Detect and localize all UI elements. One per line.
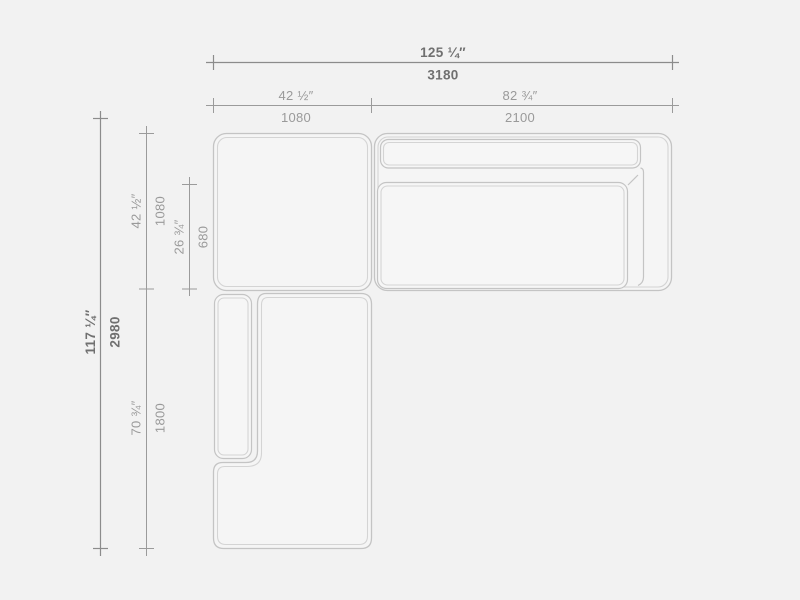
sofa-plan-drawing: 125 ¼″ 3180 42 ½″ 1080 82 ¾″ 2100 117 ¼″… xyxy=(0,0,800,600)
dim-chaise-length-mm: 1800 xyxy=(153,403,168,433)
dim-top-module-depth-inches: 42 ½″ xyxy=(129,193,144,228)
drawing-background xyxy=(0,0,800,600)
dim-seat-depth-mm: 680 xyxy=(196,226,211,249)
chaise-arm-cushion xyxy=(215,295,252,459)
sofa-backrest-cushion xyxy=(381,140,641,169)
dim-left-module-width-mm: 1080 xyxy=(281,110,311,125)
dim-overall-width-mm: 3180 xyxy=(427,68,458,83)
corner-module-outline xyxy=(214,134,372,291)
dim-overall-width-inches: 125 ¼″ xyxy=(420,45,466,60)
dim-left-module-width-inches: 42 ½″ xyxy=(278,88,313,103)
dim-right-module-width-inches: 82 ¾″ xyxy=(502,88,537,103)
dim-top-module-depth-mm: 1080 xyxy=(153,196,168,226)
dim-overall-depth-mm: 2980 xyxy=(108,316,123,347)
drawing-canvas: 125 ¼″ 3180 42 ½″ 1080 82 ¾″ 2100 117 ¼″… xyxy=(0,0,800,600)
dim-seat-depth-inches: 26 ¾″ xyxy=(172,219,187,254)
dim-chaise-length-inches: 70 ¾″ xyxy=(129,400,144,435)
dim-right-module-width-mm: 2100 xyxy=(505,110,535,125)
dim-overall-depth-inches: 117 ¼″ xyxy=(83,309,98,354)
sofa-seat-cushion xyxy=(378,183,628,289)
